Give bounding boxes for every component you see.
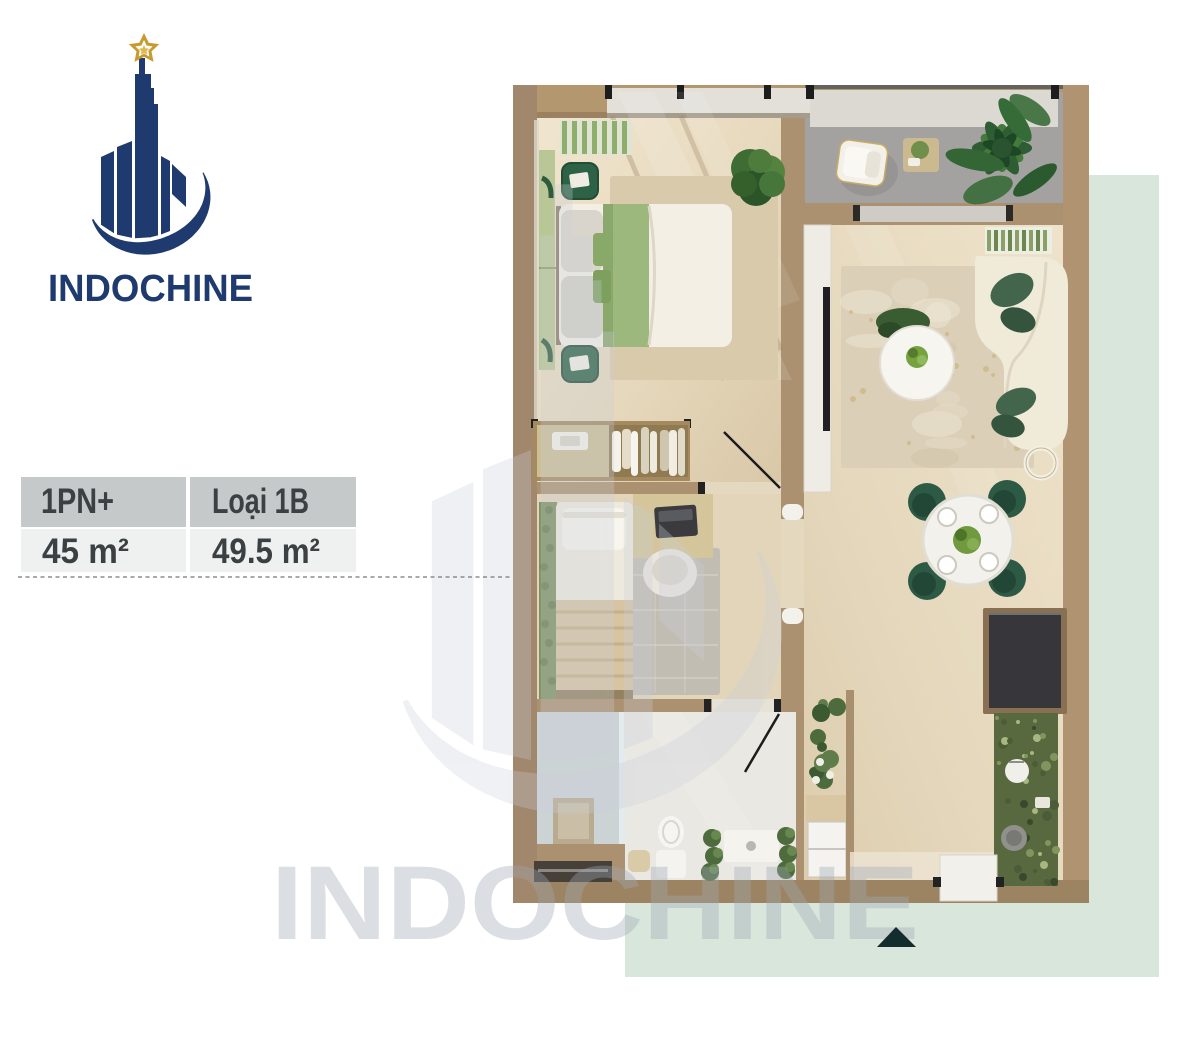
svg-text:Loại 1B: Loại 1B (212, 482, 309, 521)
svg-text:INDOCHINE: INDOCHINE (271, 845, 919, 962)
svg-text:45 m²: 45 m² (42, 532, 129, 571)
svg-text:1PN+: 1PN+ (41, 482, 114, 521)
svg-text:INDOCHINE: INDOCHINE (48, 268, 253, 310)
svg-text:49.5 m²: 49.5 m² (212, 532, 320, 571)
